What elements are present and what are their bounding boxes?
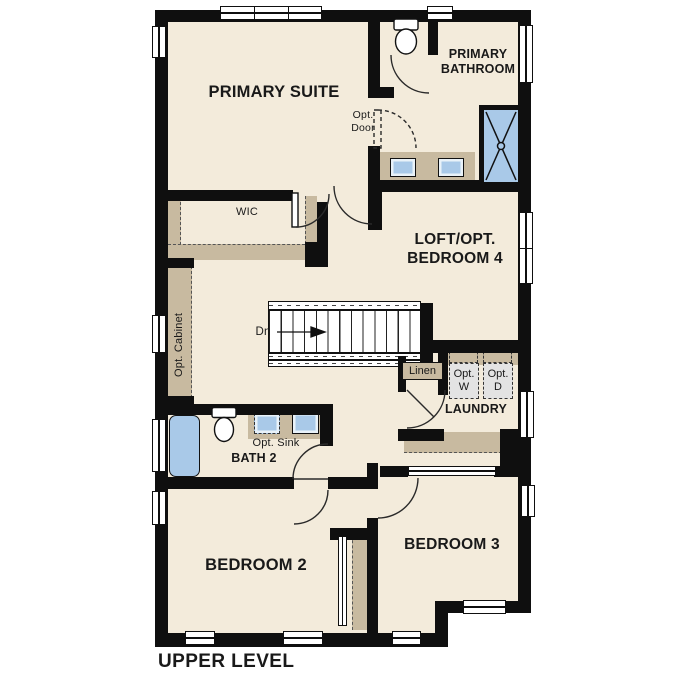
- primary-bathroom-label: PRIMARY BATHROOM: [425, 47, 531, 78]
- window-loft-right: [519, 212, 533, 284]
- stairs-rail-top: [268, 301, 421, 310]
- exterior-notch: [448, 613, 530, 655]
- primary-sink-right: [438, 158, 464, 177]
- wall-primary-suite-bottom: [165, 190, 293, 201]
- window-cabinet-left: [152, 315, 166, 353]
- bedroom2-closet-interior: [352, 530, 367, 630]
- window-bath2-left: [152, 419, 166, 472]
- wall-bed3-corner-block: [500, 429, 520, 477]
- window-bedroom3-bottom: [463, 600, 506, 614]
- wall-laundry-top: [432, 340, 520, 353]
- optional-door-label: Opt. Door: [344, 109, 382, 135]
- linen-closet: Linen: [402, 362, 443, 380]
- optional-sink-label: Opt. Sink: [246, 437, 306, 450]
- wall-laundry-bottom: [398, 429, 444, 441]
- exterior-wall-top: [155, 10, 531, 22]
- wic-label: WIC: [222, 206, 272, 219]
- bedroom3-label: BEDROOM 3: [387, 536, 517, 555]
- window-hall-bottom: [392, 631, 421, 645]
- window-bedroom3-right: [521, 485, 535, 517]
- window-bedroom2-bottom-1: [185, 631, 215, 645]
- optional-dryer-label: Opt. D: [484, 368, 512, 393]
- optional-washer: Opt. W: [449, 363, 479, 399]
- optional-washer-label: Opt. W: [450, 368, 478, 393]
- window-primary-suite-top: [220, 6, 322, 20]
- loft-bedroom4-label: LOFT/OPT. BEDROOM 4: [394, 231, 516, 269]
- wall-closet-top-stub: [330, 528, 370, 540]
- primary-sink-left: [390, 158, 416, 177]
- floor-plan: Linen Opt. W Opt. D: [0, 0, 687, 687]
- wall-stairs-end: [420, 303, 433, 365]
- shower-pan: [484, 110, 518, 182]
- window-primary-suite-left: [152, 26, 166, 58]
- window-bedroom2-left: [152, 491, 166, 525]
- linen-label: Linen: [409, 365, 436, 377]
- wic-rod-right: [305, 196, 317, 244]
- optional-dryer: Opt. D: [483, 363, 513, 399]
- exterior-wall-right: [518, 10, 531, 613]
- bath2-sink: [292, 412, 319, 434]
- wall-cabinet-top-stub: [168, 258, 194, 268]
- bedroom3-closet-door: [408, 466, 496, 476]
- bath2-label: BATH 2: [222, 451, 286, 466]
- window-primary-bath-top: [427, 6, 453, 20]
- bath2-optional-sink: [254, 413, 280, 434]
- primary-suite-label: PRIMARY SUITE: [204, 82, 344, 102]
- bedroom2-closet-door: [338, 536, 347, 626]
- wall-bath2-right-upper: [320, 404, 333, 446]
- wall-toilet-room-left: [368, 22, 380, 95]
- window-bedroom2-bottom-2: [283, 631, 323, 645]
- wall-vanity-return: [368, 146, 380, 190]
- laundry-label: LAUNDRY: [432, 402, 520, 417]
- bedroom2-label: BEDROOM 2: [186, 555, 326, 575]
- optional-cabinet-label: Opt. Cabinet: [167, 285, 192, 405]
- page-title: UPPER LEVEL: [158, 650, 378, 673]
- window-laundry-right: [520, 391, 534, 438]
- wall-bath2-bottom-left: [160, 477, 294, 489]
- stairs-down-label: Dn: [251, 325, 275, 339]
- wall-bed3-closet-left: [380, 466, 408, 477]
- staircase: [268, 310, 421, 353]
- wall-bath2-top: [160, 404, 332, 415]
- wall-wic-corner: [305, 242, 328, 267]
- wall-hall-right-upper: [367, 463, 378, 479]
- wall-toilet-room-bottom: [368, 87, 394, 98]
- bathtub: [169, 415, 200, 477]
